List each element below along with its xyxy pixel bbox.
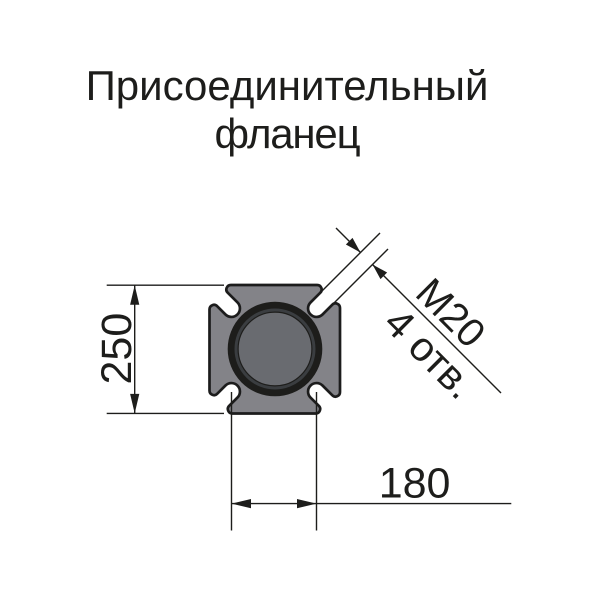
- svg-text:фланец: фланец: [215, 110, 361, 157]
- svg-text:Присоединительный: Присоединительный: [86, 62, 489, 109]
- svg-text:250: 250: [93, 313, 141, 385]
- svg-text:180: 180: [379, 460, 451, 508]
